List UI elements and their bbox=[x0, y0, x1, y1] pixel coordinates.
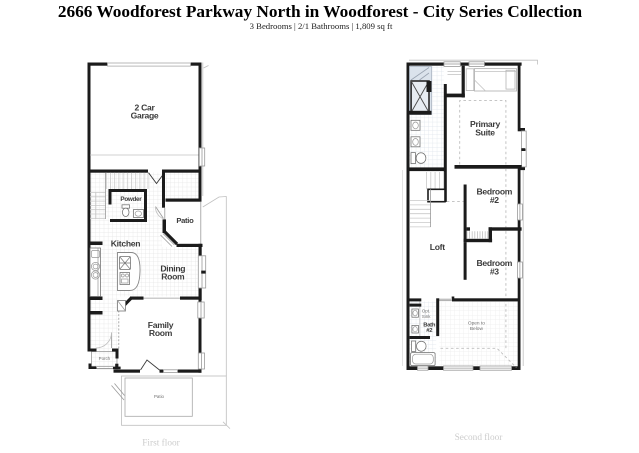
svg-text:Sink: Sink bbox=[422, 314, 431, 319]
svg-text:Suite: Suite bbox=[475, 128, 495, 138]
svg-text:Powder: Powder bbox=[120, 196, 142, 203]
svg-text:Open to: Open to bbox=[468, 320, 485, 326]
svg-text:Patio: Patio bbox=[176, 216, 194, 225]
svg-text:Below: Below bbox=[470, 326, 484, 332]
svg-text:Loft: Loft bbox=[430, 242, 445, 252]
svg-text:Kitchen: Kitchen bbox=[111, 239, 140, 249]
svg-text:2666 Woodforest Parkway North: 2666 Woodforest Parkway North in Woodfor… bbox=[58, 2, 583, 21]
svg-text:Opt.: Opt. bbox=[422, 308, 430, 313]
svg-text:#2: #2 bbox=[426, 328, 433, 334]
svg-text:Porch: Porch bbox=[99, 356, 111, 361]
svg-text:3 Bedrooms | 2/1 Bathrooms | 1: 3 Bedrooms | 2/1 Bathrooms | 1,809 sq ft bbox=[250, 21, 393, 31]
svg-text:Second floor: Second floor bbox=[455, 432, 504, 443]
svg-text:Room: Room bbox=[161, 272, 185, 282]
svg-text:Room: Room bbox=[149, 328, 173, 338]
svg-text:#2: #2 bbox=[490, 195, 499, 205]
svg-text:Patio: Patio bbox=[154, 394, 165, 399]
svg-text:#3: #3 bbox=[490, 267, 499, 277]
svg-text:Garage: Garage bbox=[131, 111, 159, 121]
svg-text:First floor: First floor bbox=[142, 438, 180, 449]
